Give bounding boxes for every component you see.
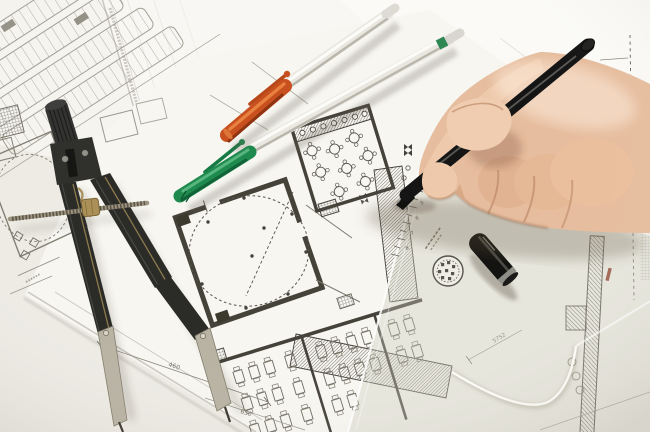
photo-vignette [0,0,650,432]
drafting-scene: 460 650 5752 [0,0,650,432]
scene-photo: 460 650 5752 [0,0,650,432]
